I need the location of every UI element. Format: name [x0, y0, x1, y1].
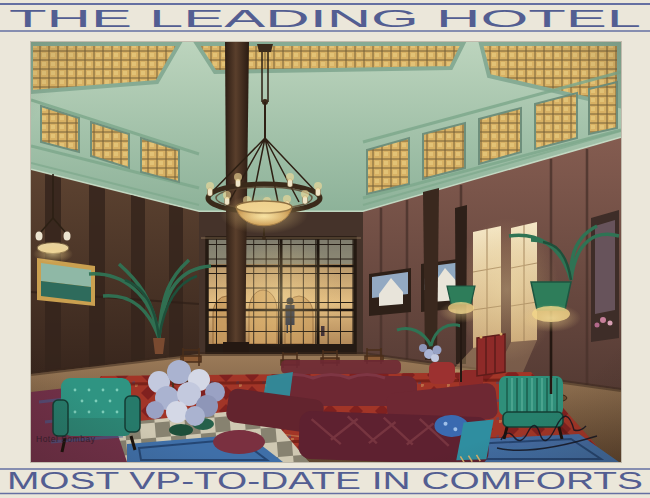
top-title: THE LEADING HOTEL	[9, 5, 641, 32]
vignette	[31, 42, 621, 462]
lounge-painting: Hotel Bombay	[31, 42, 621, 462]
corner-caption: Hotel Bombay	[36, 434, 96, 444]
bottom-title: MOST VP-TO-DATE IN COMFORTS	[7, 467, 643, 494]
bottom-banner: MOST VP-TO-DATE IN COMFORTS	[0, 454, 650, 498]
top-banner: THE LEADING HOTEL	[0, 0, 650, 42]
postcard: THE LEADING HOTEL	[0, 0, 650, 498]
